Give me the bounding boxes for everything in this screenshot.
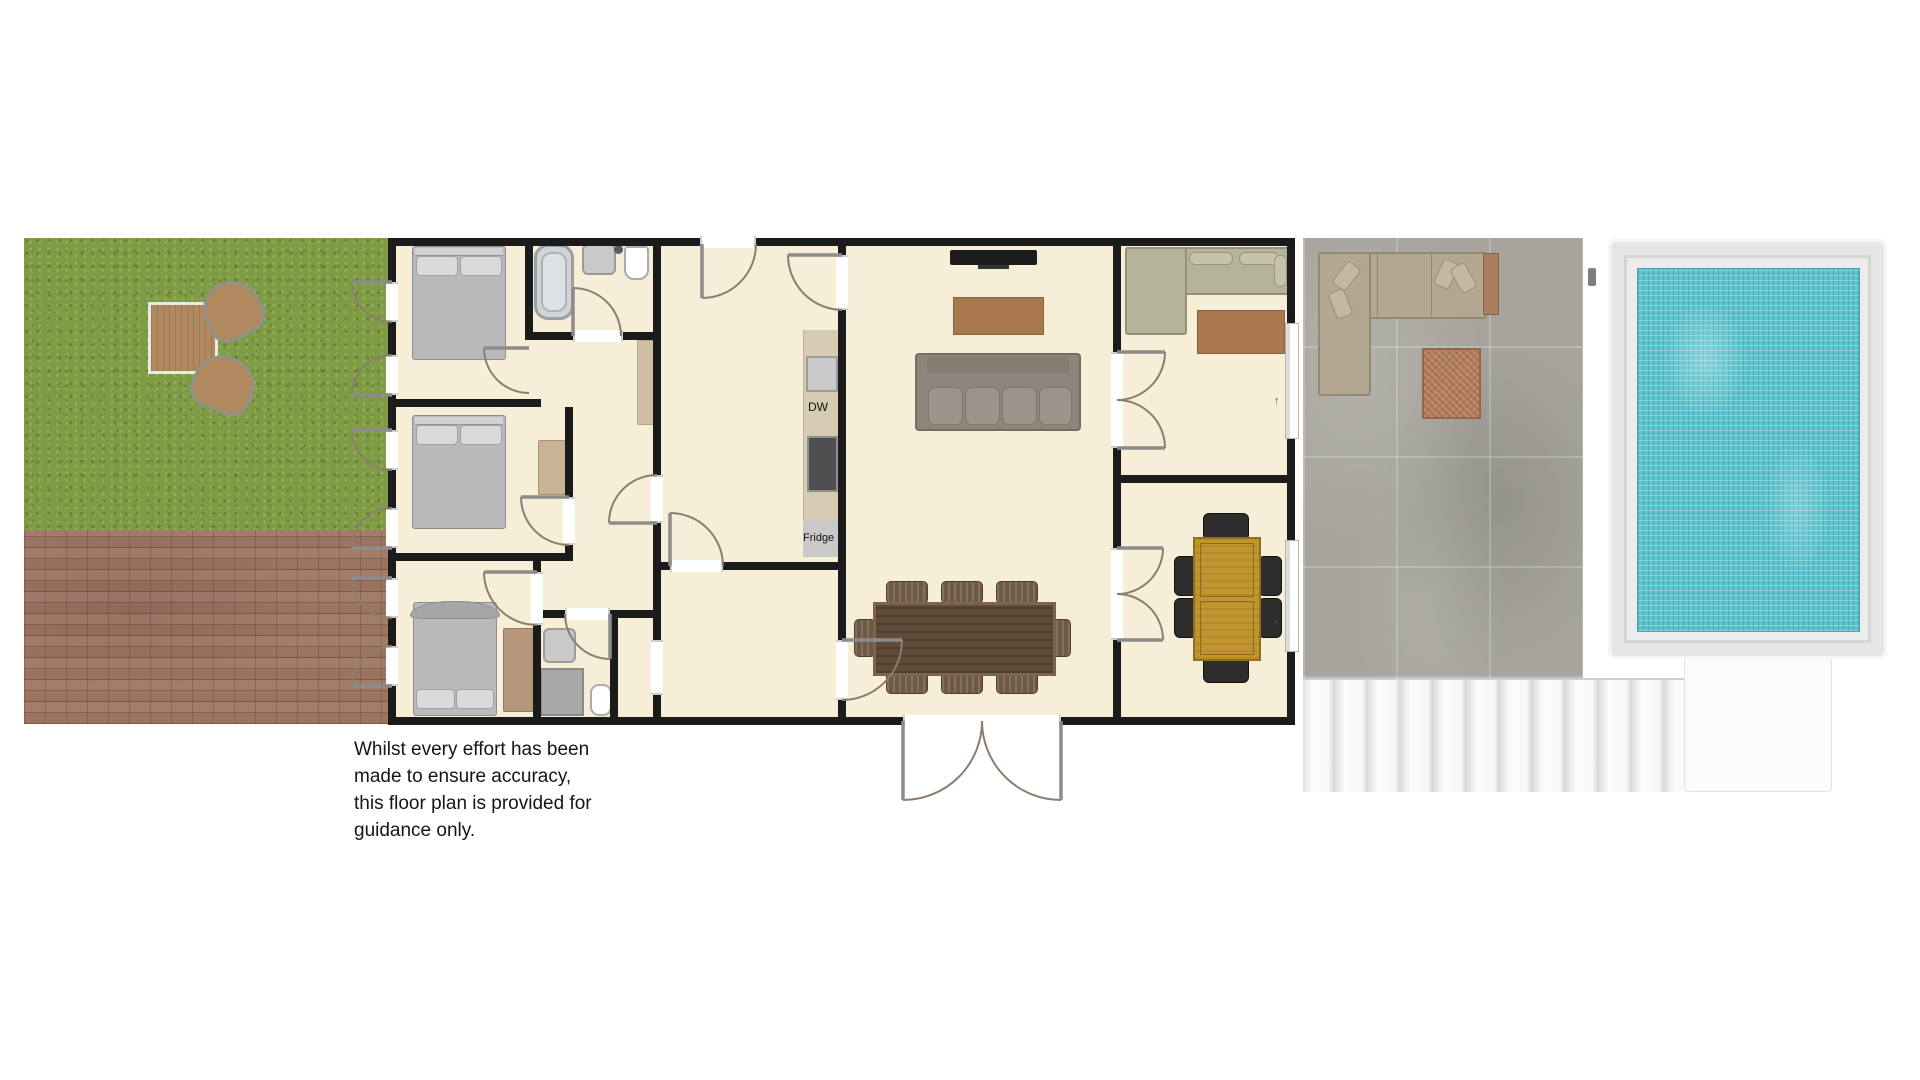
- door-arcs: [352, 244, 1165, 800]
- disclaimer-text: Whilst every effort has been made to ens…: [354, 736, 684, 844]
- disclaimer-line: this floor plan is provided for: [354, 790, 684, 817]
- disclaimer-line: Whilst every effort has been: [354, 736, 684, 763]
- door-leaves: [352, 244, 1165, 800]
- floor-plan: DW Fridge: [0, 0, 1920, 1080]
- disclaimer-line: made to ensure accuracy,: [354, 763, 684, 790]
- door-swings: [0, 0, 1920, 1080]
- disclaimer-line: guidance only.: [354, 817, 684, 844]
